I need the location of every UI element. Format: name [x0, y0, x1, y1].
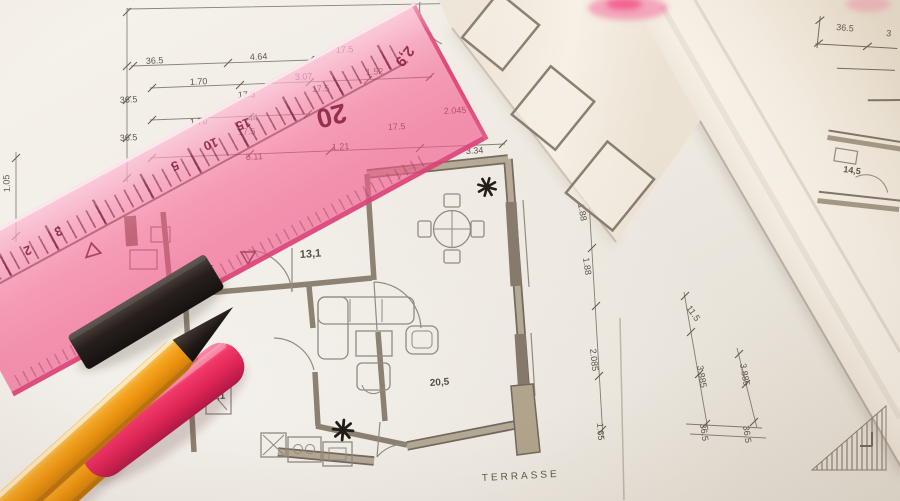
dimension-label: 3 — [886, 28, 892, 38]
dimension-label: 1.65 — [595, 422, 606, 440]
room-label-121: 12,1 — [205, 391, 226, 403]
room-label-205: 20,5 — [429, 377, 450, 389]
dimension-label: 36.5 — [146, 55, 164, 66]
plant-symbol — [332, 419, 354, 441]
dimension-label: 36.5 — [836, 22, 854, 33]
photo-canvas: 36.5 4.64 17.5 1.70 3.07 1.52 36.5 17.5 … — [0, 0, 900, 501]
dimension-label: 36.5 — [120, 132, 138, 143]
room-label-131: 13,1 — [299, 248, 321, 261]
dimension-label: 1.05 — [1, 174, 12, 192]
dimension-label: 1.70 — [190, 76, 208, 87]
dimension-label: 4.64 — [250, 51, 268, 62]
dimension-label: 36.5 — [120, 94, 138, 105]
